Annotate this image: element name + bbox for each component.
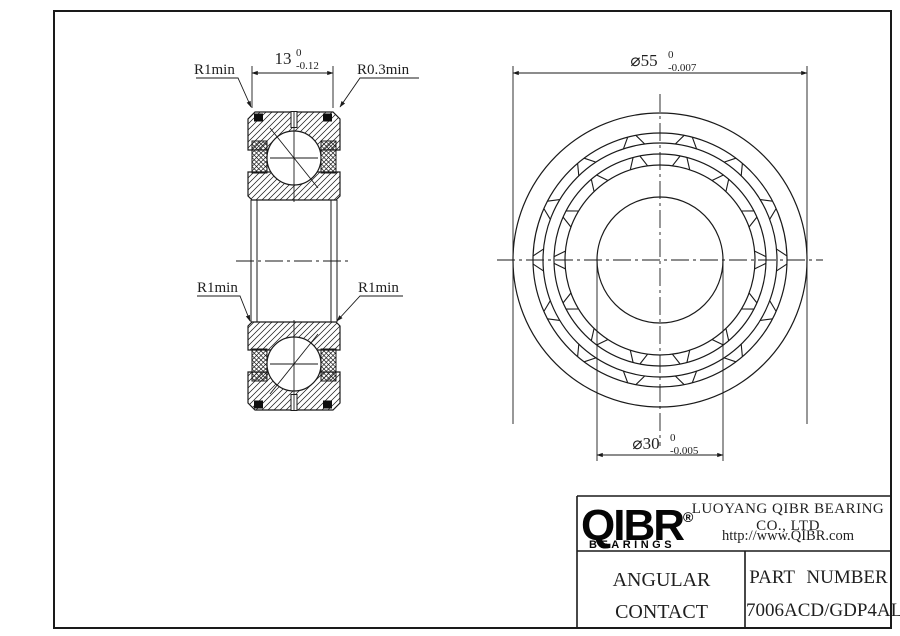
logo-subtitle: BEARINGS [589, 539, 699, 551]
od-dim-tol-bot: -0.007 [668, 62, 697, 74]
width-dim-value: 13 [275, 49, 292, 68]
seal-top-left [254, 114, 263, 122]
bore-dim-tol-bot: -0.005 [670, 445, 699, 457]
cage-bottom-left [252, 349, 267, 381]
label-r03min: R0.3min [357, 62, 410, 78]
label-r1min-mid-right: R1min [358, 280, 399, 296]
od-dim-tol-top: 0 [668, 49, 674, 61]
company-website: http://www.QIBR.com [688, 528, 888, 545]
width-dim-tol-bot: -0.12 [296, 60, 319, 72]
drawing-sheet: 13 0 -0.12 R1min R0.3min R1min R1min ⌀55… [0, 0, 900, 636]
part-number-value: 7006ACD/GDP4AL [746, 594, 891, 627]
cage-top-left [252, 141, 267, 173]
bore-dim-tol-top: 0 [670, 432, 676, 444]
bearing-front-view [497, 94, 823, 446]
product-line1: ANGULAR CONTACT [578, 564, 745, 628]
product-title: ANGULAR CONTACT BALL BEARING [578, 560, 745, 636]
part-number-label: PART NUMBER [746, 561, 891, 594]
label-r1min-top: R1min [194, 62, 235, 78]
seal-bottom-left [254, 401, 263, 409]
label-r1min-mid-left: R1min [197, 280, 238, 296]
width-dimension [252, 66, 333, 108]
cage-top-right [321, 141, 336, 173]
od-dim-value: ⌀55 [630, 51, 657, 70]
bearing-section-view [236, 112, 352, 411]
bore-dim-value: ⌀30 [632, 434, 659, 453]
width-dim-tol-top: 0 [296, 47, 302, 59]
seal-bottom-right [323, 401, 332, 409]
cage-bottom-right [321, 349, 336, 381]
product-line2: BALL BEARING [578, 628, 745, 636]
seal-top-right [323, 114, 332, 122]
part-number-cell: PART NUMBER 7006ACD/GDP4AL [746, 557, 891, 627]
